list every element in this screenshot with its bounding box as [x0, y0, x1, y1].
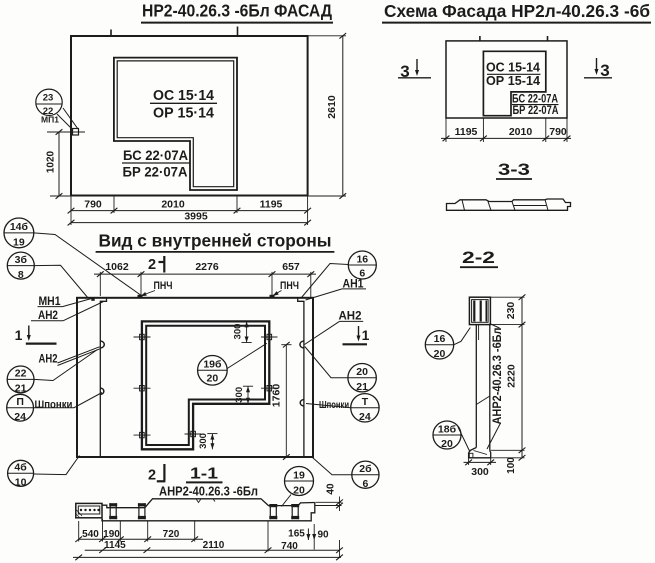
- svg-text:2610: 2610: [326, 95, 338, 119]
- svg-text:1195: 1195: [260, 199, 283, 211]
- svg-text:300: 300: [198, 433, 209, 449]
- svg-text:6: 6: [362, 478, 368, 490]
- svg-text:П: П: [16, 396, 24, 408]
- svg-text:230: 230: [505, 302, 517, 320]
- svg-text:20: 20: [356, 366, 368, 378]
- svg-text:16: 16: [434, 333, 446, 345]
- svg-text:21: 21: [15, 383, 27, 395]
- svg-text:19: 19: [13, 237, 25, 249]
- svg-text:МП1: МП1: [41, 115, 59, 125]
- svg-text:Т: Т: [362, 396, 369, 408]
- svg-text:2220: 2220: [506, 364, 518, 388]
- svg-text:300: 300: [233, 324, 244, 340]
- svg-text:Схема Фасада НР2л-40.26.3 -6б: Схема Фасада НР2л-40.26.3 -6б: [384, 1, 650, 21]
- svg-text:10: 10: [15, 477, 27, 489]
- svg-text:3-3: 3-3: [498, 161, 530, 179]
- svg-text:190: 190: [103, 529, 120, 540]
- svg-text:540: 540: [82, 529, 99, 540]
- svg-text:19б: 19б: [203, 359, 222, 371]
- svg-text:ПНЧ: ПНЧ: [280, 280, 299, 292]
- svg-text:90: 90: [317, 529, 329, 540]
- svg-text:24: 24: [359, 411, 371, 423]
- svg-text:20: 20: [207, 373, 219, 385]
- svg-text:АН2: АН2: [38, 310, 58, 322]
- svg-text:300: 300: [471, 466, 489, 478]
- svg-text:24: 24: [14, 411, 26, 423]
- svg-text:1: 1: [15, 327, 23, 343]
- svg-text:16: 16: [356, 254, 368, 266]
- svg-text:2-2: 2-2: [462, 249, 495, 267]
- svg-text:АН2: АН2: [39, 354, 58, 366]
- svg-text:20: 20: [293, 485, 305, 497]
- svg-text:21: 21: [356, 381, 368, 393]
- svg-text:1: 1: [362, 327, 370, 343]
- svg-text:8: 8: [18, 269, 24, 281]
- svg-text:740: 740: [281, 541, 298, 552]
- svg-text:2110: 2110: [203, 540, 225, 551]
- svg-text:2010: 2010: [161, 199, 185, 211]
- svg-text:БР 22·07А: БР 22·07А: [123, 165, 188, 180]
- svg-text:ОР 15·14: ОР 15·14: [153, 106, 214, 122]
- svg-text:ОС 15·14: ОС 15·14: [153, 88, 214, 104]
- svg-text:20: 20: [434, 348, 446, 360]
- svg-text:720: 720: [163, 529, 180, 540]
- svg-text:1195: 1195: [455, 126, 478, 138]
- svg-text:БС 22-07А: БС 22-07А: [512, 94, 558, 106]
- svg-text:3995: 3995: [184, 211, 208, 223]
- svg-text:165: 165: [288, 528, 305, 539]
- svg-text:1-1: 1-1: [190, 466, 218, 483]
- svg-text:790: 790: [84, 199, 102, 211]
- svg-text:18б: 18б: [438, 424, 457, 436]
- svg-text:ПНЧ: ПНЧ: [154, 280, 173, 292]
- svg-text:2: 2: [148, 257, 156, 273]
- svg-text:2б: 2б: [359, 463, 372, 475]
- svg-text:Вид с внутренней стороны: Вид с внутренней стороны: [99, 231, 332, 251]
- svg-text:АН2: АН2: [339, 311, 362, 323]
- svg-text:АНР2-40.26.3 -6Бл: АНР2-40.26.3 -6Бл: [490, 328, 504, 425]
- svg-text:23: 23: [43, 93, 54, 104]
- svg-text:657: 657: [282, 261, 300, 273]
- svg-text:300: 300: [234, 387, 245, 403]
- svg-text:19: 19: [293, 470, 305, 482]
- svg-text:2: 2: [148, 468, 156, 484]
- svg-text:1145: 1145: [104, 540, 126, 551]
- svg-text:1020: 1020: [46, 150, 57, 173]
- svg-text:БР 22-07А: БР 22-07А: [513, 105, 559, 117]
- svg-text:790: 790: [549, 126, 567, 138]
- svg-text:НР2-40.26.3 -6Бл ФАСАД: НР2-40.26.3 -6Бл ФАСАД: [142, 1, 332, 21]
- svg-text:Шпонки: Шпонки: [35, 399, 73, 411]
- svg-text:АНР2-40.26.3 -6Бл: АНР2-40.26.3 -6Бл: [159, 485, 258, 499]
- svg-text:БС 22·07А: БС 22·07А: [123, 148, 188, 163]
- svg-text:2276: 2276: [195, 261, 219, 273]
- svg-text:100: 100: [506, 457, 517, 474]
- svg-text:22: 22: [15, 368, 27, 380]
- svg-text:3б: 3б: [15, 254, 28, 266]
- svg-text:2010: 2010: [509, 126, 533, 138]
- svg-text:40: 40: [326, 483, 337, 495]
- svg-text:ОР 15-14: ОР 15-14: [486, 73, 541, 88]
- svg-text:20: 20: [441, 438, 453, 450]
- svg-text:1062: 1062: [105, 261, 129, 273]
- svg-text:4б: 4б: [14, 462, 27, 474]
- svg-text:1760: 1760: [271, 384, 283, 408]
- svg-text:14б: 14б: [10, 221, 29, 233]
